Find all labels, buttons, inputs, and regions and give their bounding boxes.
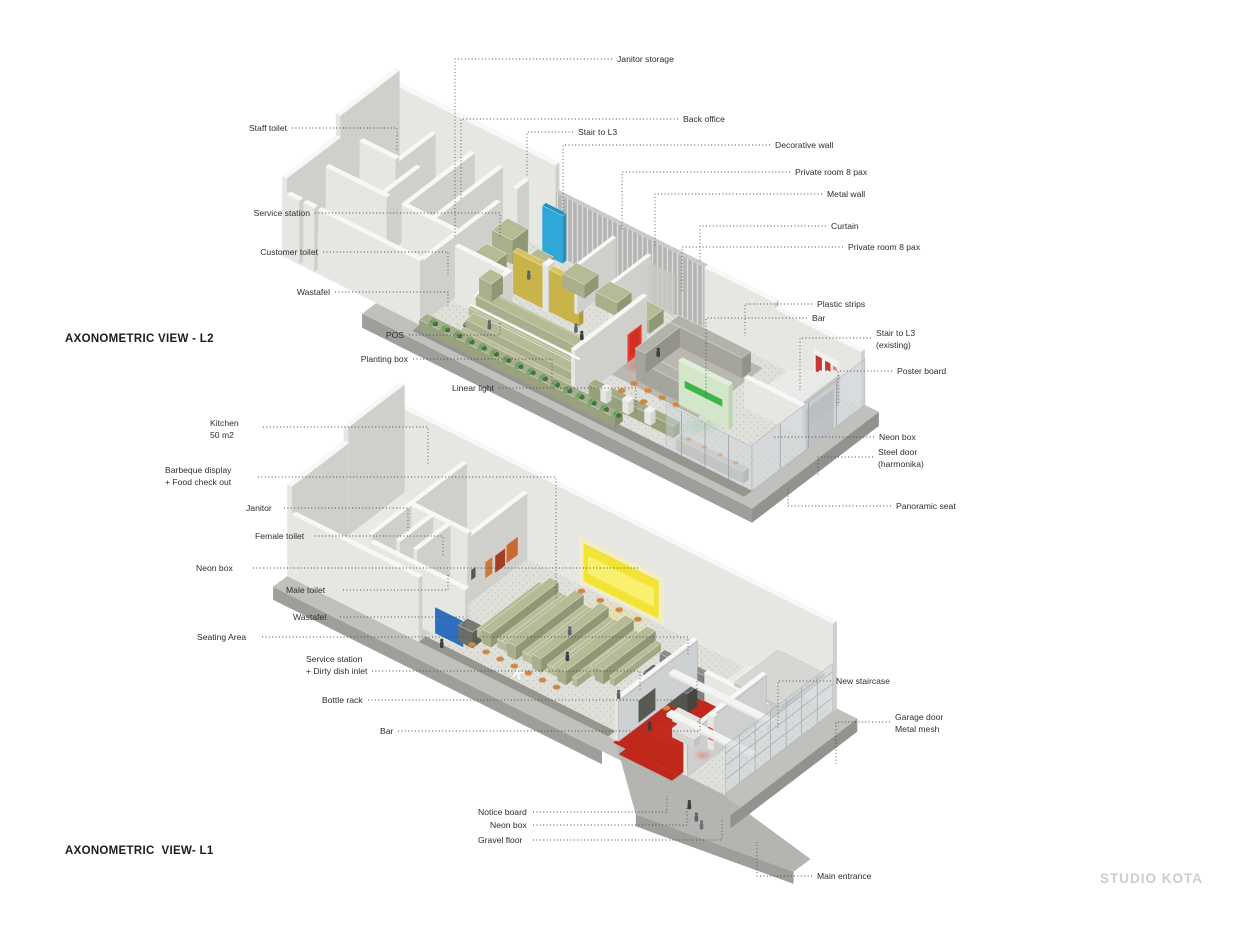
annotation-label: Decorative wall — [775, 139, 833, 151]
annotation-label: Plastic strips — [817, 298, 865, 310]
annotation-label: Staff toilet — [249, 122, 287, 134]
annotation-label: Neon box — [196, 562, 233, 574]
annotation-label: Private room 8 pax — [795, 166, 867, 178]
annotation-label: Kitchen 50 m2 — [210, 417, 239, 441]
annotation-label: Garage door Metal mesh — [895, 711, 943, 735]
annotation-label: Poster board — [897, 365, 946, 377]
annotation-label: Bar — [380, 725, 393, 737]
studio-watermark: STUDIO KOTA — [1100, 871, 1203, 886]
annotation-label: Janitor storage — [617, 53, 674, 65]
annotation-label: Neon box — [490, 819, 527, 831]
annotation-label: Stair to L3 (existing) — [876, 327, 915, 351]
annotation-label: Steel door (harmonika) — [878, 446, 924, 470]
view-title-l2: AXONOMETRIC VIEW - L2 — [65, 333, 214, 345]
annotation-label: Barbeque display + Food check out — [165, 464, 231, 488]
annotation-label: Female toilet — [255, 530, 304, 542]
annotation-label: Main entrance — [817, 870, 871, 882]
annotation-label: Customer toilet — [260, 246, 318, 258]
annotation-label: New staircase — [836, 675, 890, 687]
annotation-label: Service station — [254, 207, 310, 219]
annotation-label: Panoramic seat — [896, 500, 956, 512]
annotation-label: Back office — [683, 113, 725, 125]
annotation-label: Neon box — [879, 431, 916, 443]
annotation-label: Metal wall — [827, 188, 865, 200]
annotation-label: Notice board — [478, 806, 527, 818]
annotation-label: Wastafel — [293, 611, 326, 623]
annotation-label: Male toilet — [286, 584, 325, 596]
annotation-label: Wastafel — [297, 286, 330, 298]
architectural-diagram-page: K AXONOMETRIC VIEW - L2 AXONOMETRIC VIEW… — [0, 0, 1250, 937]
annotation-label: POS — [386, 329, 404, 341]
annotation-label: Seating Area — [197, 631, 246, 643]
annotation-label: Janitor — [246, 502, 272, 514]
annotation-label: Planting box — [361, 353, 408, 365]
view-title-l1: AXONOMETRIC VIEW- L1 — [65, 845, 214, 857]
annotation-label: Linear light — [452, 382, 494, 394]
annotation-label: Stair to L3 — [578, 126, 617, 138]
annotation-label: Curtain — [831, 220, 859, 232]
annotation-label: Bottle rack — [322, 694, 363, 706]
annotation-label: Bar — [812, 312, 825, 324]
annotation-label: Service station + Dirty dish inlet — [306, 653, 367, 677]
annotation-label: Gravel floor — [478, 834, 522, 846]
annotation-label: Private room 8 pax — [848, 241, 920, 253]
